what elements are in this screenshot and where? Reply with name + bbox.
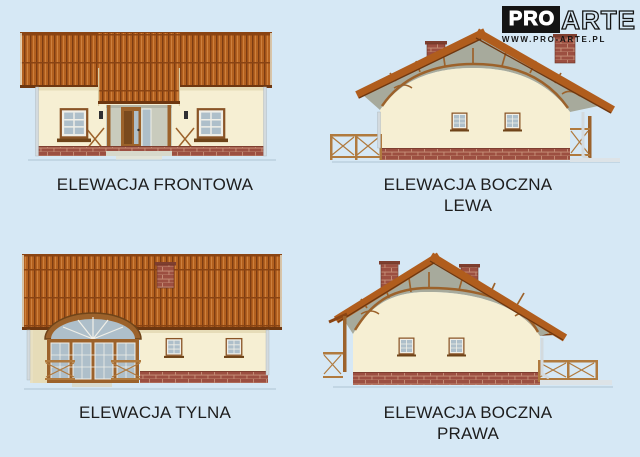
- front-elevation-drawing: [18, 8, 288, 170]
- terrace-railing-left: [330, 134, 382, 160]
- logo-wordmark: PRO ARTE: [502, 6, 636, 33]
- porch-post-right: [168, 105, 172, 151]
- caption-rear-elevation: ELEWACJA TYLNA: [0, 402, 310, 423]
- window: [224, 338, 244, 358]
- caption-line: PRAWA: [322, 423, 614, 444]
- window: [57, 108, 91, 142]
- terrace-slab: [540, 380, 612, 385]
- eaves-post-right: [570, 112, 620, 162]
- porch-post-left: [107, 105, 111, 151]
- main-roof: [22, 254, 282, 330]
- logo-arte-text: ARTE: [561, 8, 636, 33]
- elevation-sheet: ELEWACJA FRONTOWA ELEWACJA BOCZNA LEWA E…: [0, 0, 640, 457]
- caption-line: LEWA: [322, 195, 614, 216]
- window: [450, 113, 469, 132]
- side-left-elevation-drawing: [330, 28, 626, 172]
- window: [447, 338, 466, 357]
- window: [397, 338, 416, 357]
- window: [164, 338, 184, 358]
- wall-lamp-left: [99, 111, 103, 119]
- brick-base: [38, 146, 264, 160]
- caption-line: ELEWACJA FRONTOWA: [0, 174, 310, 195]
- downspout-right: [266, 330, 269, 375]
- downspout-right: [542, 338, 549, 378]
- caption-side-left-elevation: ELEWACJA BOCZNA LEWA: [322, 174, 614, 216]
- caption-line: ELEWACJA BOCZNA: [322, 402, 614, 423]
- logo-website: WWW.PRO-ARTE.PL: [502, 35, 636, 44]
- ground-line: [333, 386, 613, 388]
- ground-line: [24, 388, 276, 390]
- rear-elevation-drawing: [16, 243, 292, 395]
- terrace-railing-right: [538, 360, 598, 382]
- porch-post: [30, 330, 33, 383]
- caption-side-right-elevation: ELEWACJA BOCZNA PRAWA: [322, 402, 614, 444]
- entrance-steps: [116, 156, 162, 160]
- logo-pro-text: PRO: [502, 6, 560, 33]
- downspout-left: [36, 87, 39, 156]
- arched-window-bay: [45, 313, 141, 383]
- chimney: [155, 262, 176, 288]
- caption-line: ELEWACJA BOCZNA: [322, 174, 614, 195]
- terrace-slab: [570, 158, 620, 162]
- caption-line: ELEWACJA TYLNA: [0, 402, 310, 423]
- downspout-left: [378, 112, 381, 148]
- window: [503, 113, 522, 132]
- wall-lamp-right: [184, 111, 188, 119]
- door-sidelight: [142, 109, 151, 149]
- caption-front-elevation: ELEWACJA FRONTOWA: [0, 174, 310, 195]
- bay-edge-left: [323, 314, 347, 378]
- downspout-left: [27, 330, 30, 380]
- porch-roof: [98, 33, 180, 106]
- side-right-elevation-drawing: [323, 252, 627, 408]
- window: [194, 108, 228, 142]
- brick-base: [353, 372, 540, 385]
- downspout-right: [264, 87, 267, 156]
- porch-post: [343, 316, 347, 372]
- brick-base: [380, 148, 570, 160]
- terrace-steps: [72, 383, 112, 387]
- proarte-logo: PRO ARTE WWW.PRO-ARTE.PL: [502, 6, 636, 44]
